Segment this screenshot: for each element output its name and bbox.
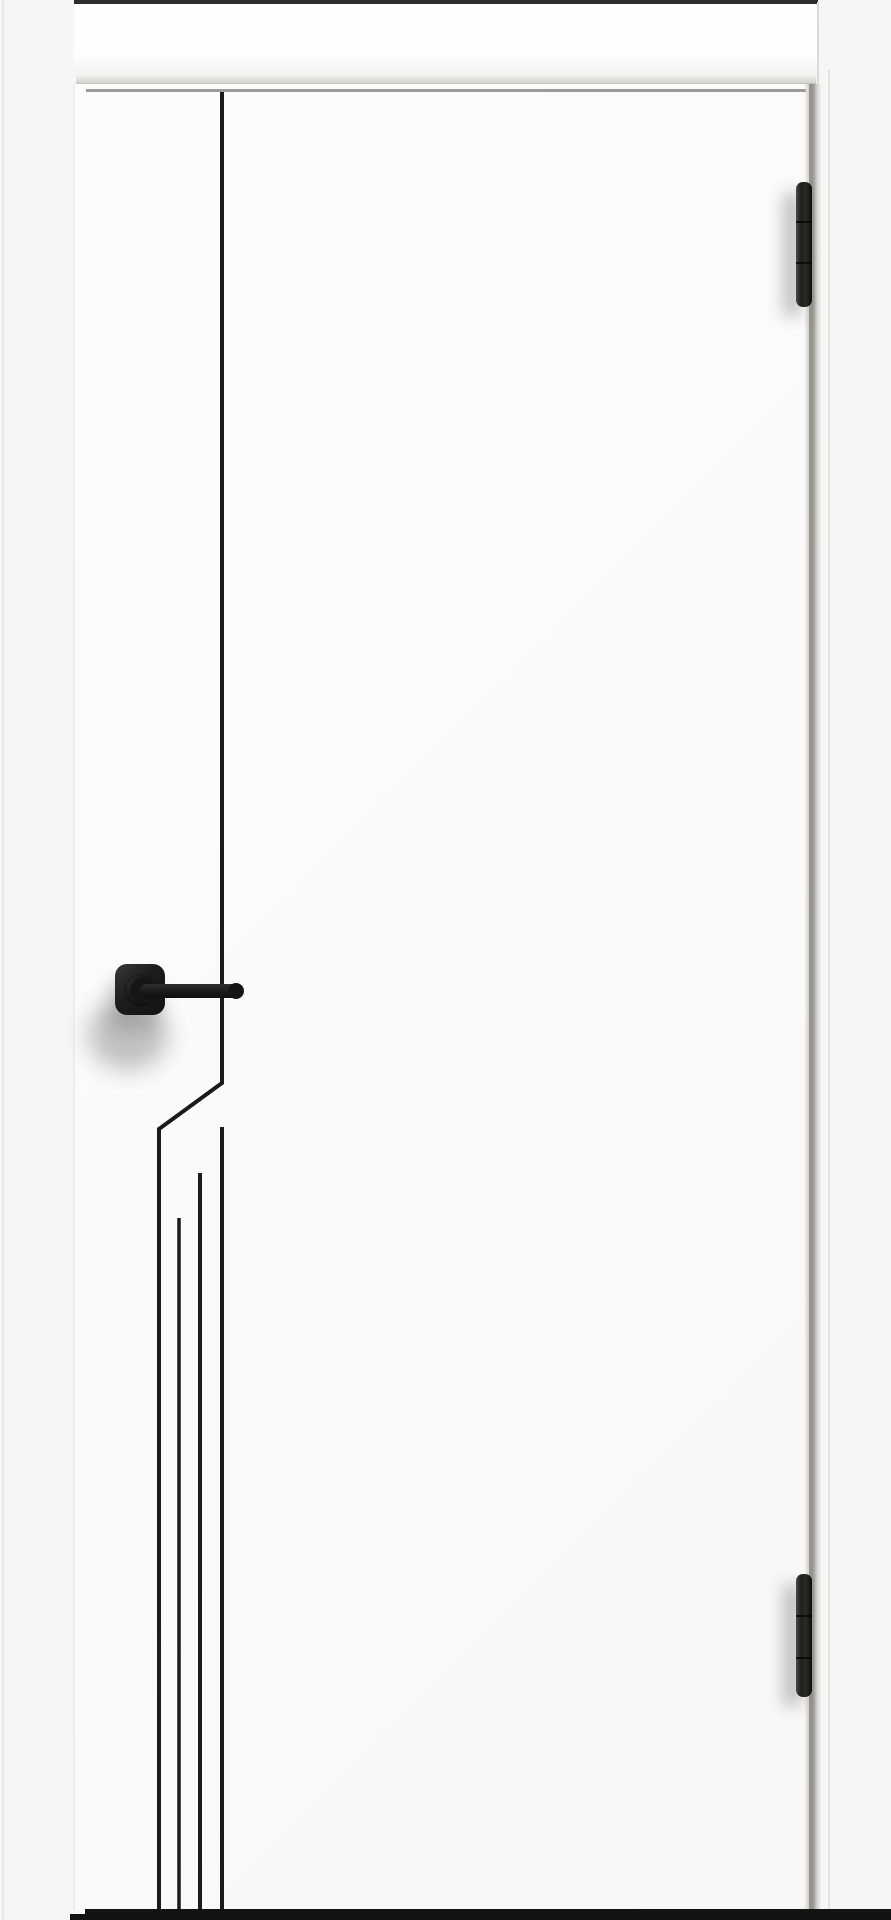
hinge-bottom-seam-1 — [796, 1615, 812, 1617]
door-bottom-gap — [85, 1909, 891, 1920]
hinge-bottom-seam-2 — [796, 1657, 812, 1659]
hinge-top-seam-1 — [796, 221, 812, 223]
line-art — [0, 0, 891, 1920]
hinge-top — [796, 182, 812, 307]
door-product-photo — [0, 0, 891, 1920]
door-bottom-gap-step — [70, 1914, 86, 1920]
door-handle-lever-end — [228, 983, 244, 999]
hinge-bottom — [796, 1574, 812, 1697]
design-line-main — [159, 92, 222, 1912]
hinge-top-seam-2 — [796, 262, 812, 264]
